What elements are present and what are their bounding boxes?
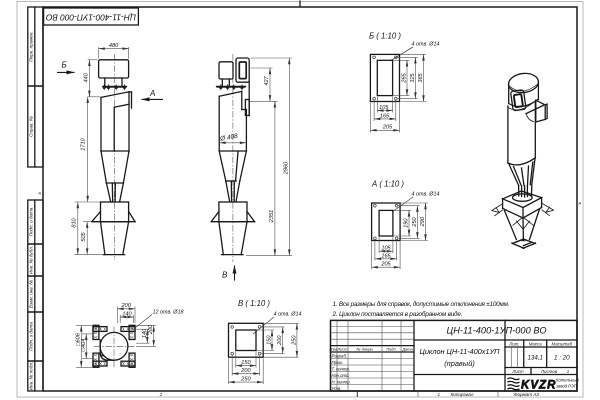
svg-text:2. Циклон поставляется в разоб: 2. Циклон поставляется в разобранном вид… bbox=[332, 310, 463, 318]
svg-text:Б ( 1:10 ): Б ( 1:10 ) bbox=[369, 32, 401, 41]
svg-text:Копировал: Копировал bbox=[451, 392, 474, 397]
svg-text:Масса: Масса bbox=[529, 341, 543, 346]
svg-text:Масштаб: Масштаб bbox=[552, 341, 573, 346]
svg-text:KVZR: KVZR bbox=[521, 379, 556, 391]
svg-text:265: 265 bbox=[401, 72, 407, 83]
svg-text:205: 205 bbox=[380, 262, 391, 268]
svg-text:Дата: Дата bbox=[401, 346, 413, 351]
svg-text:№ докум.: № докум. bbox=[356, 346, 373, 351]
svg-text:150: 150 bbox=[266, 335, 272, 345]
svg-text:1 : 20: 1 : 20 bbox=[554, 355, 570, 362]
svg-text:134,1: 134,1 bbox=[527, 355, 542, 362]
svg-text:Н. контр.: Н. контр. bbox=[332, 379, 351, 384]
svg-text:2: 2 bbox=[159, 392, 163, 397]
svg-text:Взам. инв. №: Взам. инв. № bbox=[28, 280, 33, 308]
svg-text:(правый): (правый) bbox=[444, 359, 475, 368]
svg-text:4 отв. Ø14: 4 отв. Ø14 bbox=[412, 192, 440, 198]
svg-text:365: 365 bbox=[418, 72, 424, 82]
svg-text:150: 150 bbox=[241, 360, 251, 366]
svg-text:В ( 1:10 ): В ( 1:10 ) bbox=[238, 299, 270, 308]
svg-text:Б: Б bbox=[62, 61, 67, 70]
svg-text:А ( 1:10 ): А ( 1:10 ) bbox=[371, 180, 404, 189]
svg-text:Котельный: Котельный bbox=[556, 378, 579, 383]
svg-text:Пров.: Пров. bbox=[332, 360, 343, 365]
svg-text:А: А bbox=[577, 201, 581, 206]
svg-text:ЦН-11-400-1УП-000 ВО: ЦН-11-400-1УП-000 ВО bbox=[447, 326, 547, 336]
svg-text:427: 427 bbox=[264, 75, 270, 85]
svg-text:2960: 2960 bbox=[284, 161, 290, 175]
svg-text:Лист: Лист bbox=[511, 369, 524, 374]
svg-text:200: 200 bbox=[240, 368, 251, 374]
svg-text:Перв. примен.: Перв. примен. bbox=[28, 31, 33, 62]
svg-text:480: 480 bbox=[109, 43, 119, 49]
svg-text:□404: □404 bbox=[81, 339, 87, 352]
svg-text:250: 250 bbox=[291, 335, 297, 346]
svg-text:Утв.: Утв. bbox=[332, 386, 342, 391]
svg-text:Т. контр.: Т. контр. bbox=[332, 366, 351, 371]
svg-text:Инв. № подл.: Инв. № подл. bbox=[28, 362, 33, 391]
svg-text:205: 205 bbox=[382, 125, 393, 131]
svg-text:Подп. и дата: Подп. и дата bbox=[28, 322, 33, 351]
svg-text:140: 140 bbox=[142, 328, 148, 338]
svg-text:Подп.: Подп. bbox=[386, 346, 396, 351]
svg-text:А: А bbox=[149, 89, 155, 98]
svg-text:250: 250 bbox=[240, 377, 251, 383]
svg-text:105: 105 bbox=[379, 105, 389, 111]
svg-text:ЦН-11-400-1УП-000 ВО: ЦН-11-400-1УП-000 ВО bbox=[46, 12, 136, 22]
svg-text:Справ. №: Справ. № bbox=[28, 116, 33, 137]
svg-text:1: 1 bbox=[438, 392, 441, 397]
svg-text:Листов: Листов bbox=[540, 369, 558, 374]
svg-text:1. Все размеры для справок, до: 1. Все размеры для справок, допустимые о… bbox=[333, 300, 510, 308]
svg-text:Циклон ЦН-11-400х1УП: Циклон ЦН-11-400х1УП bbox=[420, 347, 501, 356]
svg-text:440: 440 bbox=[84, 72, 90, 82]
svg-text:200: 200 bbox=[121, 303, 132, 309]
svg-text:140: 140 bbox=[122, 311, 132, 317]
svg-text:Лит.: Лит. bbox=[508, 341, 519, 346]
svg-text:2351: 2351 bbox=[269, 210, 275, 223]
svg-text:12 отв. Ø18: 12 отв. Ø18 bbox=[153, 310, 184, 316]
svg-text:Формат А3: Формат А3 bbox=[514, 392, 540, 397]
svg-text:Разраб.: Разраб. bbox=[332, 353, 348, 358]
svg-text:165: 165 bbox=[380, 113, 390, 119]
svg-text:1710: 1710 bbox=[81, 137, 87, 150]
svg-text:Нач.отд.: Нач.отд. bbox=[332, 373, 350, 378]
svg-text:Инв. № дубл.: Инв. № дубл. bbox=[28, 246, 33, 274]
svg-text:250: 250 bbox=[412, 216, 418, 227]
svg-text:Лист: Лист bbox=[336, 346, 348, 351]
svg-text:200: 200 bbox=[277, 335, 283, 346]
svg-text:Подп. и дата: Подп. и дата bbox=[28, 207, 33, 236]
svg-text:810: 810 bbox=[71, 217, 77, 227]
svg-text:В: В bbox=[222, 271, 228, 280]
svg-text:505: 505 bbox=[81, 231, 87, 241]
svg-text:190: 190 bbox=[403, 218, 409, 228]
svg-text:290: 290 bbox=[420, 216, 426, 227]
svg-text:4 отв. Ø14: 4 отв. Ø14 bbox=[412, 42, 440, 48]
svg-text:200: 200 bbox=[148, 324, 154, 335]
svg-text:105: 105 bbox=[381, 246, 391, 252]
svg-text:165: 165 bbox=[381, 253, 391, 259]
svg-text:А: А bbox=[37, 191, 41, 196]
svg-text:325: 325 bbox=[410, 72, 416, 82]
svg-text:4 отв. Ø14: 4 отв. Ø14 bbox=[274, 312, 302, 318]
svg-text:завод РЭП: завод РЭП bbox=[555, 384, 578, 389]
